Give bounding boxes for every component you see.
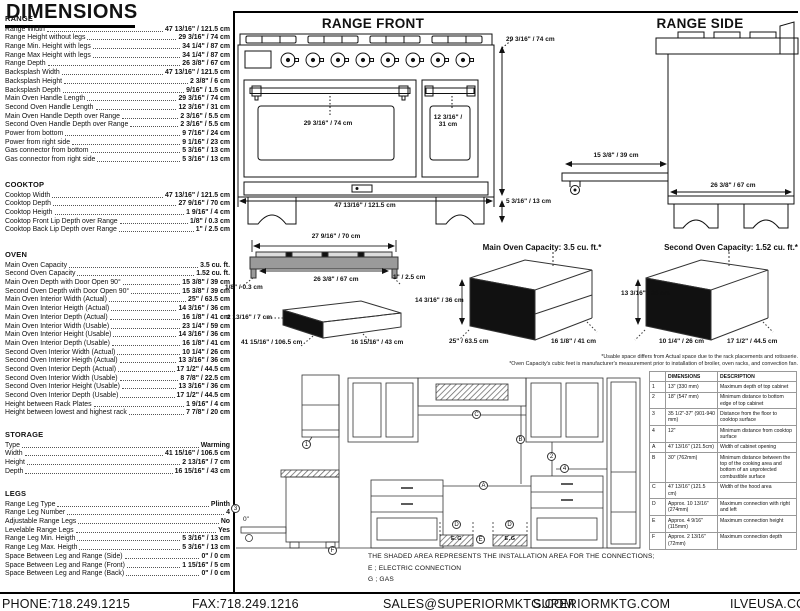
front-width-label: 47 13/16" / 121.5 cm xyxy=(300,202,430,209)
spec-row: Range Width47 13/16" / 121.5 cm xyxy=(5,24,230,33)
spec-label: Range Width xyxy=(5,26,45,33)
spec-label: Range Leg Type xyxy=(5,501,55,508)
section-title-oven: OVEN xyxy=(5,250,230,259)
footnote-usable-space: *Usable space differs from Actual space … xyxy=(601,354,798,360)
spec-row: Second Oven Handle Depth over Range2 3/1… xyxy=(5,120,230,129)
spec-label: Height xyxy=(5,459,25,466)
spec-row: Main Oven Handle Length29 3/16" / 74 cm xyxy=(5,94,230,103)
spec-value: 23 1/4" / 59 cm xyxy=(182,323,230,330)
spec-label: Width xyxy=(5,450,23,457)
dotted-leader xyxy=(130,126,178,127)
table-row: A47 13/16" (121.5cm)Width of cabinet ope… xyxy=(650,442,797,452)
spec-row: Second Oven Interior Width (Usable)8 7/8… xyxy=(5,373,230,382)
dotted-leader xyxy=(120,362,177,363)
footnote-capacity: *Oven Capacity's cubic feet is manufactu… xyxy=(509,361,798,367)
spec-label: Type xyxy=(5,442,20,449)
table-ref-cell: A xyxy=(650,442,666,452)
dotted-leader xyxy=(25,473,172,474)
spec-row: Space Between Leg and Range (Side)0" / 0… xyxy=(5,551,230,560)
spec-value: 34 1/4" / 87 cm xyxy=(182,52,230,59)
dotted-leader xyxy=(112,345,180,346)
table-row: 412"Minimum distance from cooktop surfac… xyxy=(650,426,797,443)
spec-value: 2 3/16" / 5.5 cm xyxy=(180,121,230,128)
spec-label: Second Oven Interior Width (Usable) xyxy=(5,375,118,382)
spec-row: Main Oven Capacity3.5 cu. ft. xyxy=(5,260,230,269)
dotted-leader xyxy=(47,31,163,32)
spec-label: Second Oven Interior Heigth (Actual) xyxy=(5,357,118,364)
spec-label: Second Oven Handle Depth over Range xyxy=(5,121,128,128)
table-row: C47 13/16" (121.5 cm)Width of the hood a… xyxy=(650,482,797,499)
second-oven-capacity-drawing xyxy=(631,250,781,350)
main-oven-capacity-title: Main Oven Capacity: 3.5 cu. ft.* xyxy=(472,243,612,252)
table-row: 113" (330 mm)Maximum depth of top cabine… xyxy=(650,382,797,392)
dotted-leader xyxy=(78,523,219,524)
shaded-connection-right-label: E.G xyxy=(493,536,527,542)
spec-label: Second Oven Interior Width (Actual) xyxy=(5,349,115,356)
spec-value: 27 9/16" / 70 cm xyxy=(178,200,230,207)
spec-label: Second Oven Interior Depth (Usable) xyxy=(5,392,118,399)
section-cooktop: COOKTOPCooktop Width47 13/16" / 121.5 cm… xyxy=(5,180,230,233)
spec-value: 1.52 cu. ft. xyxy=(196,270,230,277)
spec-label: Main Oven Handle Length xyxy=(5,95,85,102)
spec-row: Main Oven Handle Depth over Range2 3/16"… xyxy=(5,111,230,120)
table-ref-cell: B xyxy=(650,453,666,482)
spec-label: Range Max Height with legs xyxy=(5,52,91,59)
spec-value: 9 7/16" / 24 cm xyxy=(182,130,230,137)
spec-row: Second Oven Interior Height (Usable)13 3… xyxy=(5,382,230,391)
spec-value: 47 13/16" / 121.5 cm xyxy=(165,26,230,33)
dotted-leader xyxy=(120,223,188,224)
spec-row: Second Oven Interior Depth (Actual)17 1/… xyxy=(5,364,230,373)
spec-row: Levelable Range LegsYes xyxy=(5,525,230,534)
table-row: 218" (547 mm)Minimum distance to bottom … xyxy=(650,392,797,409)
spec-value: 5 3/16" / 13 cm xyxy=(182,156,230,163)
table-dimension-cell: 30" (762mm) xyxy=(666,453,718,482)
second-capacity-width-label: 10 1/4" / 26 cm xyxy=(659,338,704,345)
spec-label: Levelable Range Legs xyxy=(5,527,74,534)
dotted-leader xyxy=(129,414,184,415)
storage-depth-label: 16 15/16" / 43 cm xyxy=(351,339,403,346)
main-handle-label: 29 3/16" / 74 cm xyxy=(263,120,393,127)
section-oven: OVENMain Oven Capacity3.5 cu. ft.Second … xyxy=(5,250,230,416)
spec-row: Main Oven Interior Heigth (Actual)14 3/1… xyxy=(5,303,230,312)
spec-row: Backsplash Depth9/16" / 1.5 cm xyxy=(5,85,230,94)
installation-dimensions-table: DIMENSIONSDESCRIPTION 113" (330 mm)Maxim… xyxy=(649,371,797,550)
spec-value: 13 3/16" / 36 cm xyxy=(178,357,230,364)
table-description-cell: Maximum connection depth xyxy=(718,532,797,549)
dotted-leader xyxy=(53,205,176,206)
dotted-leader xyxy=(93,48,180,49)
spec-label: Range Leg Max. Heigth xyxy=(5,544,77,551)
dimensions-table-header: DIMENSIONSDESCRIPTION xyxy=(650,372,797,382)
spec-value: Warming xyxy=(201,442,230,449)
spec-row: Height2 13/16" / 7 cm xyxy=(5,457,230,466)
table-description-cell: Minimum distance between the top of the … xyxy=(718,453,797,482)
dotted-leader xyxy=(87,39,176,40)
spec-label: Range Min. Height with legs xyxy=(5,43,91,50)
spec-label: Height between Rack Plates xyxy=(5,401,92,408)
spec-value: 16 15/16" / 43 cm xyxy=(175,468,230,475)
table-ref-cell: E xyxy=(650,516,666,533)
cooktop-back-lip-label: 1" / 2.5 cm xyxy=(393,274,425,281)
side-depth-label: 26 3/8" / 67 cm xyxy=(673,182,793,189)
spec-label: Adjustable Range Legs xyxy=(5,518,76,525)
second-capacity-depth-label: 17 1/2" / 44.5 cm xyxy=(727,338,777,345)
drawings-region: RANGE FRONT RANGE SIDE xyxy=(233,14,800,593)
table-header-cell: DIMENSIONS xyxy=(666,372,718,382)
second-handle-label: 12 3/16" / 31 cm xyxy=(423,114,473,128)
dotted-leader xyxy=(87,100,176,101)
storage-height-label: 2 13/16" / 7 cm xyxy=(227,314,272,321)
table-row: 335 1/2"-37" (901-940 mm)Distance from t… xyxy=(650,409,797,426)
table-row: EApprox. 4 9/16" (115mm)Maximum connecti… xyxy=(650,516,797,533)
spec-row: Range Min. Height with legs34 1/4" / 87 … xyxy=(5,41,230,50)
spec-value: 5 3/16" / 13 cm xyxy=(182,147,230,154)
spec-value: 16 1/8" / 41 cm xyxy=(182,314,230,321)
shaded-connection-left-label: E.G xyxy=(440,536,473,542)
marker-e: E xyxy=(476,535,485,544)
dotted-leader xyxy=(91,152,181,153)
spec-row: Range Depth26 3/8" / 67 cm xyxy=(5,59,230,68)
table-dimension-cell: 47 13/16" (121.5 cm) xyxy=(666,482,718,499)
dotted-leader xyxy=(125,558,200,559)
dotted-leader xyxy=(48,65,181,66)
table-dimension-cell: 35 1/2"-37" (901-940 mm) xyxy=(666,409,718,426)
spec-value: 7 7/8" / 20 cm xyxy=(186,409,230,416)
footer-item: FAX:718.249.1216 xyxy=(192,597,299,611)
table-dimension-cell: Approx. 10 13/16" (274mm) xyxy=(666,499,718,516)
section-range: RANGERange Width47 13/16" / 121.5 cmRang… xyxy=(5,14,230,163)
spec-value: No xyxy=(221,518,230,525)
spec-label: Depth xyxy=(5,468,23,475)
spec-row: Gas connector from bottom5 3/16" / 13 cm xyxy=(5,146,230,155)
dotted-leader xyxy=(96,109,177,110)
spec-value: 14 3/16" / 36 cm xyxy=(178,305,230,312)
dotted-leader xyxy=(77,540,180,541)
marker-c: C xyxy=(472,410,481,419)
dotted-leader xyxy=(127,567,180,568)
dotted-leader xyxy=(57,506,208,507)
table-description-cell: Distance from the floor to cooktop surfa… xyxy=(718,409,797,426)
spec-row: Main Oven Interior Depth (Usable)16 1/8"… xyxy=(5,338,230,347)
main-capacity-width-label: 25" / 63.5 cm xyxy=(449,338,489,345)
spec-row: Range Leg TypePlinth xyxy=(5,499,230,508)
spec-row: Range Height without legs29 3/16" / 74 c… xyxy=(5,33,230,42)
spec-row: Power from bottom9 7/16" / 24 cm xyxy=(5,128,230,137)
spec-label: Gas connector from bottom xyxy=(5,147,89,154)
marker-f: F xyxy=(328,546,337,555)
table-dimension-cell: 12" xyxy=(666,426,718,443)
dotted-leader xyxy=(120,397,174,398)
dotted-leader xyxy=(119,231,194,232)
spec-label: Main Oven Interior Width (Usable) xyxy=(5,323,109,330)
main-oven-capacity-drawing xyxy=(455,250,605,350)
spec-value: 1 9/16" / 4 cm xyxy=(186,209,230,216)
table-row: FApprox. 2 13/16" (72mm)Maximum connecti… xyxy=(650,532,797,549)
spec-label: Power from right side xyxy=(5,139,70,146)
spec-row: Range Leg Max. Heigth5 3/16" / 13 cm xyxy=(5,542,230,551)
spec-label: Main Oven Capacity xyxy=(5,262,67,269)
dotted-leader xyxy=(79,549,180,550)
spec-row: Width41 15/16" / 106.5 cm xyxy=(5,449,230,458)
table-description-cell: Width of the hood area xyxy=(718,482,797,499)
spec-value: 47 13/16" / 121.5 cm xyxy=(165,192,230,199)
spec-row: Second Oven Capacity1.52 cu. ft. xyxy=(5,269,230,278)
spec-value: 2 3/16" / 5.5 cm xyxy=(180,113,230,120)
dotted-leader xyxy=(97,161,180,162)
dotted-leader xyxy=(131,293,180,294)
dotted-leader xyxy=(72,144,180,145)
table-description-cell: Minimum distance from cooktop surface xyxy=(718,426,797,443)
dotted-leader xyxy=(118,371,174,372)
spec-value: 13 3/16" / 36 cm xyxy=(178,383,230,390)
spec-label: Cooktop Front Lip Depth over Range xyxy=(5,218,118,225)
table-description-cell: Width of cabinet opening xyxy=(718,442,797,452)
range-side-drawing xyxy=(528,14,800,230)
section-title-cooktop: COOKTOP xyxy=(5,180,230,189)
dotted-leader xyxy=(67,514,224,515)
table-header-cell: DESCRIPTION xyxy=(718,372,797,382)
section-legs: LEGSRange Leg TypePlinthRange Leg Number… xyxy=(5,489,230,577)
dotted-leader xyxy=(122,118,178,119)
spec-value: Plinth xyxy=(211,501,230,508)
spec-label: Backsplash Depth xyxy=(5,87,61,94)
spec-value: 8 7/8" / 22.5 cm xyxy=(180,375,230,382)
spec-row: Cooktop Depth27 9/16" / 70 cm xyxy=(5,199,230,208)
spec-value: 2 3/8" / 6 cm xyxy=(190,78,230,85)
table-ref-cell: F xyxy=(650,532,666,549)
footer-item: PHONE:718.249.1215 xyxy=(2,597,130,611)
spec-label: Second Oven Interior Depth (Actual) xyxy=(5,366,116,373)
second-oven-capacity-title: Second Oven Capacity: 1.52 cu. ft.* xyxy=(656,243,800,252)
spec-value: 41 15/16" / 106.5 cm xyxy=(165,450,230,457)
spec-row: Main Oven Interior Height (Usable)14 3/1… xyxy=(5,330,230,339)
cooktop-depth-label: 27 9/16" / 70 cm xyxy=(276,233,396,240)
spec-label: Space Between Leg and Range (Front) xyxy=(5,562,125,569)
spec-row: Cooktop Width47 13/16" / 121.5 cm xyxy=(5,190,230,199)
spec-value: 15 3/8" / 39 cm xyxy=(182,279,230,286)
spec-value: 1/8" / 0.3 cm xyxy=(190,218,230,225)
marker-d-right: D xyxy=(505,520,514,529)
spec-row: Second Oven Interior Width (Actual)10 1/… xyxy=(5,347,230,356)
spec-label: Range Depth xyxy=(5,60,46,67)
spec-row: Main Oven Interior Width (Usable)23 1/4"… xyxy=(5,321,230,330)
table-ref-cell: D xyxy=(650,499,666,516)
spec-label: Second Oven Depth with Door Open 90° xyxy=(5,288,129,295)
spec-value: Yes xyxy=(218,527,230,534)
marker-b: B xyxy=(516,435,525,444)
dotted-leader xyxy=(113,336,176,337)
spec-value: 9 1/16" / 23 cm xyxy=(182,139,230,146)
marker-2: 2 xyxy=(547,452,556,461)
spec-row: Main Oven Interior Width (Actual)25" / 6… xyxy=(5,295,230,304)
top-rule xyxy=(234,11,798,13)
spec-label: Cooktop Heigth xyxy=(5,209,53,216)
table-description-cell: Maximum depth of top cabinet xyxy=(718,382,797,392)
table-row: DApprox. 10 13/16" (274mm)Maximum connec… xyxy=(650,499,797,516)
second-capacity-height-label: 13 3/16" / 36 cm xyxy=(621,290,670,297)
dotted-leader xyxy=(63,92,185,93)
dotted-leader xyxy=(122,388,177,389)
dotted-leader xyxy=(109,301,186,302)
spec-label: Cooktop Depth xyxy=(5,200,51,207)
spec-value: 12 3/16" / 31 cm xyxy=(178,104,230,111)
spec-list: RANGERange Width47 13/16" / 121.5 cmRang… xyxy=(5,0,230,592)
footer-item: ILVEUSA.COM xyxy=(730,597,800,611)
spec-value: 1" / 2.5 cm xyxy=(196,226,230,233)
second-handle-label-line1: 12 3/16" / xyxy=(423,114,473,121)
marker-3: 3 xyxy=(231,504,240,513)
spec-label: Range Leg Min. Heigth xyxy=(5,535,75,542)
spec-row: Height between lowest and highest rack7 … xyxy=(5,408,230,417)
spec-row: Depth16 15/16" / 43 cm xyxy=(5,466,230,475)
spec-value: 1 15/16" / 5 cm xyxy=(182,562,230,569)
storage-drawer-drawing xyxy=(243,298,443,358)
dimensions-table-body: 113" (330 mm)Maximum depth of top cabine… xyxy=(650,382,797,549)
spec-label: Main Oven Interior Depth (Usable) xyxy=(5,340,110,347)
dotted-leader xyxy=(123,284,181,285)
spec-value: 10 1/4" / 26 cm xyxy=(182,349,230,356)
section-title-storage: STORAGE xyxy=(5,430,230,439)
table-ref-cell: 2 xyxy=(650,392,666,409)
table-row: B30" (762mm)Minimum distance between the… xyxy=(650,453,797,482)
table-ref-cell: C xyxy=(650,482,666,499)
dotted-leader xyxy=(22,447,199,448)
spec-value: 15 3/8" / 39 cm xyxy=(182,288,230,295)
spec-value: 5 3/16" / 13 cm xyxy=(182,544,230,551)
spec-label: Backsplash Width xyxy=(5,69,60,76)
table-ref-cell: 4 xyxy=(650,426,666,443)
table-header-cell xyxy=(650,372,666,382)
spec-value: 29 3/16" / 74 cm xyxy=(178,95,230,102)
spec-row: Main Oven Depth with Door Open 90°15 3/8… xyxy=(5,277,230,286)
spec-row: Backsplash Height2 3/8" / 6 cm xyxy=(5,76,230,85)
spec-row: Range Max Height with legs34 1/4" / 87 c… xyxy=(5,50,230,59)
dotted-leader xyxy=(69,267,198,268)
spec-label: Power from bottom xyxy=(5,130,63,137)
dotted-leader xyxy=(77,275,194,276)
spec-label: Range Height without legs xyxy=(5,34,85,41)
spec-row: Second Oven Handle Length12 3/16" / 31 c… xyxy=(5,102,230,111)
marker-a: A xyxy=(479,481,488,490)
spec-value: 26 3/8" / 67 cm xyxy=(182,60,230,67)
dotted-leader xyxy=(111,328,180,329)
table-dimension-cell: 18" (547 mm) xyxy=(666,392,718,409)
spec-value: 2 13/16" / 7 cm xyxy=(182,459,230,466)
spec-value: 14 3/16" / 36 cm xyxy=(178,331,230,338)
spec-row: Cooktop Heigth1 9/16" / 4 cm xyxy=(5,207,230,216)
spec-row: TypeWarming xyxy=(5,440,230,449)
installation-note: THE SHADED AREA REPRESENTS THE INSTALLAT… xyxy=(368,553,655,560)
spec-row: Second Oven Depth with Door Open 90°15 3… xyxy=(5,286,230,295)
spec-row: Cooktop Front Lip Depth over Range1/8" /… xyxy=(5,216,230,225)
section-title-range: RANGE xyxy=(5,14,230,23)
spec-row: Gas connector from right side5 3/16" / 1… xyxy=(5,154,230,163)
dotted-leader xyxy=(65,135,180,136)
dotted-leader xyxy=(120,380,179,381)
table-description-cell: Maximum connection height xyxy=(718,516,797,533)
dotted-leader xyxy=(64,83,188,84)
spec-value: 25" / 63.5 cm xyxy=(188,296,230,303)
marker-4: 4 xyxy=(560,464,569,473)
table-dimension-cell: 13" (330 mm) xyxy=(666,382,718,392)
cooktop-front-lip-label: 1/8" / 0.3 cm xyxy=(225,284,263,291)
spec-row: Backsplash Width47 13/16" / 121.5 cm xyxy=(5,67,230,76)
spec-row: Power from right side9 1/16" / 23 cm xyxy=(5,137,230,146)
table-description-cell: Maximum connection with right and left xyxy=(718,499,797,516)
spec-value: 17 1/2" / 44.5 cm xyxy=(177,366,230,373)
spec-label: Second Oven Capacity xyxy=(5,270,75,277)
spec-row: Range Leg Min. Heigth5 3/16" / 13 cm xyxy=(5,534,230,543)
spec-value: 0" / 0 cm xyxy=(201,553,230,560)
dotted-leader xyxy=(52,197,163,198)
dimensions-spec-sheet: { "page_title": "DIMENSIONS", "sections"… xyxy=(0,0,800,610)
spec-row: Second Oven Interior Depth (Usable)17 1/… xyxy=(5,390,230,399)
dotted-leader xyxy=(94,406,185,407)
spec-label: Cooktop Width xyxy=(5,192,50,199)
spec-label: Height between lowest and highest rack xyxy=(5,409,127,416)
spec-label: Gas connector from right side xyxy=(5,156,95,163)
zero-gap-label: 0" xyxy=(243,516,249,523)
spec-row: Height between Rack Plates1 9/16" / 4 cm xyxy=(5,399,230,408)
spec-label: Range Leg Number xyxy=(5,509,65,516)
legend-electric: E ; ELECTRIC CONNECTION xyxy=(368,565,461,572)
spec-value: 16 1/8" / 41 cm xyxy=(182,340,230,347)
spec-value: 29 3/16" / 74 cm xyxy=(178,34,230,41)
spec-row: Second Oven Interior Heigth (Actual)13 3… xyxy=(5,356,230,365)
storage-width-label: 41 15/16" / 106.5 cm xyxy=(241,339,302,346)
spec-value: 9/16" / 1.5 cm xyxy=(186,87,230,94)
table-dimension-cell: Approx. 2 13/16" (72mm) xyxy=(666,532,718,549)
spec-label: Main Oven Depth with Door Open 90° xyxy=(5,279,121,286)
side-door-depth-label: 15 3/8" / 39 cm xyxy=(556,152,676,159)
installation-diagram xyxy=(236,372,648,578)
spec-value: 1 9/16" / 4 cm xyxy=(186,401,230,408)
spec-value: 47 13/16" / 121.5 cm xyxy=(165,69,230,76)
spec-value: 17 1/2" / 44.5 cm xyxy=(177,392,230,399)
dotted-leader xyxy=(62,74,163,75)
spec-value: 0" / 0 cm xyxy=(201,570,230,577)
spec-row: Space Between Leg and Range (Back)0" / 0… xyxy=(5,569,230,578)
spec-row: Main Oven Interior Depth (Actual)16 1/8"… xyxy=(5,312,230,321)
section-storage: STORAGETypeWarmingWidth41 15/16" / 106.5… xyxy=(5,430,230,475)
spec-row: Range Leg Number4 xyxy=(5,508,230,517)
spec-value: 3.5 cu. ft. xyxy=(200,262,230,269)
spec-label: Main Oven Interior Depth (Actual) xyxy=(5,314,108,321)
table-ref-cell: 3 xyxy=(650,409,666,426)
dotted-leader xyxy=(126,575,199,576)
spec-label: Second Oven Interior Height (Usable) xyxy=(5,383,120,390)
spec-label: Main Oven Interior Height (Usable) xyxy=(5,331,111,338)
table-description-cell: Minimum distance to bottom edge of top c… xyxy=(718,392,797,409)
table-dimension-cell: 47 13/16" (121.5cm) xyxy=(666,442,718,452)
spec-label: Second Oven Handle Length xyxy=(5,104,94,111)
spec-row: Adjustable Range LegsNo xyxy=(5,516,230,525)
spec-label: Main Oven Handle Depth over Range xyxy=(5,113,120,120)
spec-label: Main Oven Interior Heigth (Actual) xyxy=(5,305,109,312)
spec-value: 5 3/16" / 13 cm xyxy=(182,535,230,542)
spec-label: Space Between Leg and Range (Back) xyxy=(5,570,124,577)
table-ref-cell: 1 xyxy=(650,382,666,392)
spec-label: Space Between Leg and Range (Side) xyxy=(5,553,123,560)
spec-label: Backsplash Height xyxy=(5,78,62,85)
section-title-legs: LEGS xyxy=(5,489,230,498)
main-capacity-height-label: 14 3/16" / 36 cm xyxy=(415,297,464,304)
dotted-leader xyxy=(117,354,180,355)
second-handle-label-line2: 31 cm xyxy=(423,121,473,128)
dotted-leader xyxy=(76,532,217,533)
dotted-leader xyxy=(27,464,180,465)
